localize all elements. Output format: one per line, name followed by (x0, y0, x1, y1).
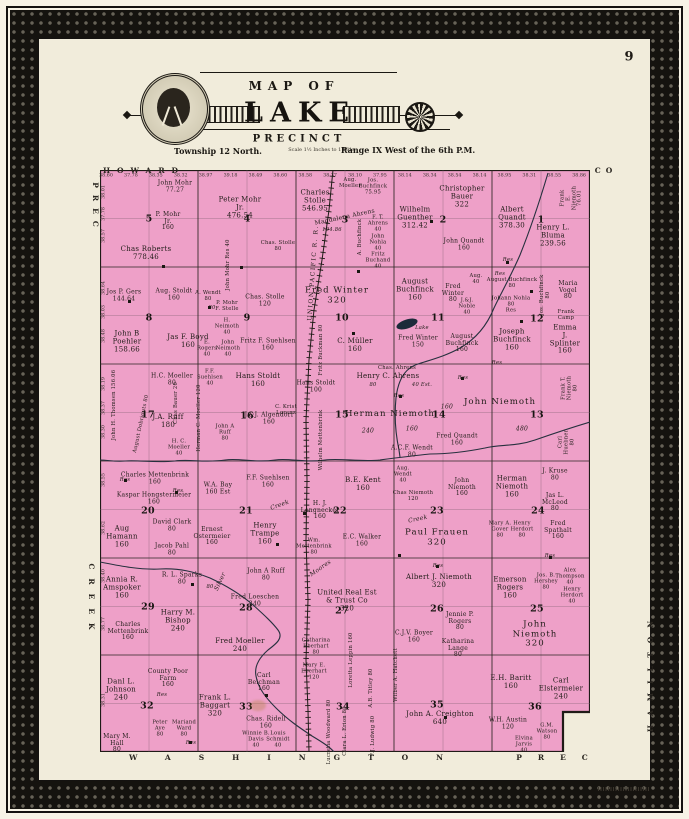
parcel-label: Jacob Pahl 80 (155, 543, 189, 556)
parcel-label: John Nohla 40 (369, 234, 386, 251)
parcel-label: John H. Thomsen 156.06 (112, 370, 118, 441)
map-geography (100, 170, 590, 752)
parcel-label: Katharina Lange 80 (442, 639, 474, 659)
section-number: 13 (530, 411, 544, 422)
parcel-label: Peter Mohr Jr. 476.54 (219, 196, 262, 219)
parcel-label: Mary A. Gover 80 (489, 521, 512, 538)
section-number: 23 (430, 507, 444, 518)
plat-map: 5432189101112171615141320212223242928272… (100, 170, 590, 752)
survey-number: 38.86 (572, 173, 586, 178)
border-county-label: WASHINGTON (129, 754, 471, 762)
parcel-label: Wilber A. Hatchett (394, 648, 400, 702)
page-number: 9 (624, 50, 633, 65)
parcel-label: A.B. Titley 80 (369, 668, 375, 707)
residence-square (549, 556, 552, 559)
residence-square (265, 694, 268, 697)
parcel-label: Res (492, 361, 502, 367)
parcel-label: 240 (362, 429, 374, 436)
parcel-label: Fred Moeller 240 (215, 638, 265, 654)
parcel-label: C. Müller 160 (337, 338, 372, 354)
parcel-label: Louis Schmidt 40 (266, 731, 290, 748)
survey-number: 38.62 (101, 521, 106, 535)
parcel-label: John Niemoth 160 (448, 478, 476, 498)
parcel-label: Henry Herdort 40 (561, 587, 584, 604)
section-number: 32 (140, 702, 154, 713)
section-number: 29 (141, 603, 155, 614)
sunburst-medallion (405, 102, 435, 132)
survey-number: 38.49 (249, 173, 263, 178)
parcel-label: John Neimoth 40 (216, 340, 241, 357)
parcel-label: John Niemoth 320 (508, 621, 563, 650)
parcel-label: B.E. Kent 160 (345, 477, 381, 493)
section-number: 36 (528, 703, 542, 714)
parcel-label: Annia R. Amspoker 160 (103, 576, 141, 599)
parcel-label: Wilhelm Mettenbrink (319, 410, 325, 471)
survey-number: 38.97 (199, 173, 213, 178)
parcel-label: Catharina Eberhart 80 (302, 638, 330, 655)
survey-number: 38.01 (101, 185, 106, 199)
parcel-label: F. T. Ahrens 40 (368, 215, 388, 232)
parcel-label: John Quandt 160 (444, 238, 485, 251)
survey-number: 38.55 (101, 473, 106, 487)
survey-number: 38.14 (398, 173, 412, 178)
attribution-microtext (598, 787, 650, 791)
parcel-label: 104.86 (322, 228, 342, 234)
parcel-label: John A. Creighton 640 (406, 711, 474, 727)
survey-number: 38.77 (101, 617, 106, 631)
parcel-label: August Buchfinck 160 (446, 334, 479, 354)
parcel-label: Aug. Wendt 40 (394, 466, 412, 483)
survey-number: 38.31 (522, 173, 536, 178)
border-county-label: CREEK (87, 563, 95, 638)
survey-number: 38.57 (101, 229, 106, 243)
survey-number: 38.54 (448, 173, 462, 178)
residence-square (398, 554, 401, 557)
parcel-label: Hans Stoldt 160 (236, 373, 281, 389)
parcel-label: Fred Winter 150 (398, 335, 438, 348)
survey-number: 37.95 (373, 173, 387, 178)
parcel-label: H.C. Moeller 80 (151, 373, 193, 386)
parcel-label: A.C.F. Wendt 80 (391, 445, 433, 458)
parcel-label: Henry L. Bluma 239.56 (536, 224, 569, 247)
parcel-label: R. L. Sparks 80 (162, 572, 202, 585)
border-county-label: CO (595, 167, 618, 175)
parcel-label: Carl Huebner 80 (558, 430, 575, 455)
parcel-label: Lake (415, 326, 429, 332)
parcel-label: Jas L. McLeod 80 (542, 493, 568, 513)
residence-square (276, 543, 279, 546)
title-range: Range IX West of the 6th P.M. (341, 145, 475, 155)
parcel-label: Henry C. Ahrens (357, 373, 420, 381)
survey-number: 38.55 (547, 173, 561, 178)
residence-square (128, 300, 131, 303)
parcel-label: Loretta Leppin 160 (349, 632, 355, 687)
parcel-label: 160 (406, 427, 418, 434)
parcel-label: Fritz Buchand 40 (366, 252, 391, 269)
survey-number: 38.40 (101, 569, 106, 583)
survey-number: 38.31 (101, 693, 106, 707)
parcel-label: Peter Aye 80 (152, 720, 167, 737)
parcel-label: Jos. Buchfinck 75.95 (359, 178, 388, 195)
survey-number: 38.10 (348, 173, 362, 178)
parcel-label: Hans Stoldt 100 (297, 380, 336, 393)
parcel-label: Chas. Ridell 160 (246, 716, 286, 729)
parcel-label: Chas Niemoth 120 (393, 491, 433, 503)
section-number: 8 (146, 314, 153, 325)
parcel-label: Frank E. Niemoth 76.01 (560, 186, 583, 211)
parcel-label: Alex Thompson 40 (555, 568, 584, 585)
survey-number: 38.37 (101, 401, 106, 415)
survey-number: 38.34 (423, 173, 437, 178)
parcel-label: 480 (516, 427, 528, 434)
parcel-label: Chas. Stolle 120 (245, 294, 284, 307)
survey-number: 38.37 (323, 173, 337, 178)
parcel-label: August Buchfinck 160 (396, 278, 434, 301)
residence-square (506, 261, 509, 264)
parcel-label: Aug. 40 (469, 274, 482, 286)
section-number: 25 (530, 605, 544, 616)
parcel-label: Charles Mettenbrink 160 (108, 622, 149, 642)
section-number: 20 (141, 507, 155, 518)
parcel-label: Henry Herdort 80 (511, 521, 534, 538)
parcel-label: Wilhelm Guenther 312.42 (397, 206, 433, 229)
survey-number: 38.19 (101, 377, 106, 391)
parcel-label: 80 (369, 383, 376, 389)
survey-number: 39.18 (224, 173, 238, 178)
residence-square (303, 512, 306, 515)
parcel-label: Chas. Ahrens (378, 366, 416, 372)
parcel-label: Frank T. Niemoth 80 (561, 376, 578, 400)
parcel-label: Chas Roberts 778.46 (121, 246, 172, 262)
atlas-page: { "page": {"number": "9", "paper": "#f1e… (0, 0, 689, 819)
residence-square (175, 491, 178, 494)
parcel-label: Paul Frauen 320 (405, 528, 469, 547)
section-number: 9 (244, 314, 251, 325)
residence-square (436, 565, 439, 568)
parcel-label: Danl L. Johnson 240 (106, 678, 136, 701)
parcel-label: F.J. Ludwig 80 (371, 716, 377, 757)
parcel-label: Fritz F. Suehlsen 160 (240, 338, 296, 351)
parcel-label: Clara L. Erion 80 (343, 706, 349, 756)
title-township: Township 12 North. (174, 146, 262, 156)
parcel-label: Aug. Stoldt 160 (156, 288, 193, 301)
parcel-label: Jos. B. Hershey 80 (534, 573, 558, 590)
border-county-label: PREC (516, 754, 604, 762)
parcel-label: Chas Bauer 20 (174, 382, 180, 424)
survey-number: 38.95 (498, 173, 512, 178)
parcel-label: Mary M. Hall 80 (103, 734, 131, 754)
title-map-of: MAP OF (249, 79, 340, 93)
survey-number: 38.30 (101, 425, 106, 439)
residence-square (444, 716, 447, 719)
parcel-label: F.F. Suehlsen 160 (246, 475, 289, 488)
parcel-label: Fritz Buckman 80 (319, 324, 325, 375)
residence-square (357, 270, 360, 273)
parcel-label: Joseph Buchfinck 160 (493, 328, 531, 351)
border-county-label: PREC (91, 182, 99, 234)
residence-square (208, 306, 211, 309)
precinct-name: LAKE (244, 98, 356, 129)
parcel-label: 40 Est. (412, 383, 432, 389)
parcel-label: Frank L. Baggart 320 (199, 694, 231, 717)
parcel-label: 160 (441, 405, 453, 412)
parcel-label: J.&J. Noble 40 (459, 298, 476, 315)
parcel-label: W.A. Bay 160 Est (204, 482, 233, 495)
section-number: 10 (335, 314, 349, 325)
engraving-hairline-top (200, 72, 397, 73)
parcel-label: John A Ruff 80 (216, 424, 235, 441)
parcel-label: Jos. Buchfinck 80 (540, 273, 552, 317)
parcel-label: United Real Est & Trust Co 320 (317, 589, 377, 612)
survey-number: 38.14 (473, 173, 487, 178)
parcel-label: A. Buchfinck (358, 219, 364, 255)
parcel-label: Frank Camp (558, 310, 575, 322)
parcel-label: Emma J. Splinter 160 (550, 324, 581, 355)
parcel-label: Johann Nohla 80 Res (492, 296, 531, 313)
section-number: 21 (239, 507, 253, 518)
parcel-label: C.J.V. Boyer 160 (395, 630, 433, 643)
parcel-label: John Niemoth (464, 398, 536, 408)
parcel-label: Carl Elstermeier 240 (539, 677, 584, 700)
parcel-label: Mariand Ward 80 (172, 720, 196, 737)
parcel-label: Jos P. Gers 144.64 (107, 289, 142, 302)
parcel-label: John Mohr Res 40 (226, 239, 232, 290)
parcel-label: Emerson Rogers 160 (493, 576, 526, 599)
residence-square (461, 377, 464, 380)
residence-square (240, 266, 243, 269)
parcel-label: Herman Niemoth 160 (496, 475, 528, 498)
residence-square (189, 741, 192, 744)
residence-square (430, 220, 433, 223)
parcel-label: August Buchfinck 80 (487, 278, 538, 290)
section-number: 5 (146, 215, 153, 226)
parcel-label: Wm. Mettenbrink 80 (296, 538, 332, 555)
parcel-label: Christopher Bauer 322 (439, 185, 484, 208)
parcel-label: John B Poehler 158.66 (113, 330, 142, 353)
parcel-label: W.H. Austin 120 (489, 717, 527, 730)
parcel-label: Charles Stolle 546.95 (300, 189, 329, 212)
residence-square (191, 583, 194, 586)
surveyor-medallion (140, 73, 210, 145)
parcel-label: H. J. Longnecker 160 (301, 501, 340, 521)
parcel-label: Herman C. Moeller 120 (197, 384, 203, 451)
paper-stain (250, 700, 266, 711)
parcel-label: Maria Vogel 80 (558, 281, 577, 301)
parcel-label: Albert Quandt 378.30 (498, 206, 526, 229)
parcel-label: Herman Niemoth (345, 410, 435, 420)
parcel-label: John A Ruff 80 (247, 568, 284, 581)
parcel-label: H. C. Moeller 40 (168, 439, 190, 456)
parcel-label: Charles Mettenbrink 160 (121, 472, 189, 485)
survey-number: 37.78 (101, 207, 106, 221)
border-county-label: HOWARD (103, 167, 185, 175)
residence-square (530, 290, 533, 293)
residence-square (520, 320, 523, 323)
section-number: 26 (430, 605, 444, 616)
parcel-label: J. Kruse 80 (542, 468, 568, 481)
title-precinct: PRECINCT (253, 134, 346, 145)
residence-square (352, 332, 355, 335)
section-number: 2 (440, 216, 447, 227)
section-number: 11 (431, 314, 445, 325)
survey-number: 38.60 (273, 173, 287, 178)
survey-number: 38.58 (298, 173, 312, 178)
parcel-label: E.H. Baritt 160 (490, 675, 531, 691)
parcel-label: Chas. Stolle 80 (261, 241, 296, 253)
residence-square (124, 479, 127, 482)
border-county-label: HAMILTON (647, 612, 655, 732)
parcel-label: Fred Quandt 160 (436, 433, 478, 446)
parcel-label: Fred Loeschen 240 (231, 594, 279, 607)
parcel-label: Jennie P. Rogers 80 (446, 612, 474, 632)
parcel-label: Albert J. Niemoth 320 (406, 574, 472, 590)
parcel-label: P. Mohr F. Stelle (215, 301, 238, 313)
parcel-label: Res (157, 693, 167, 699)
parcel-label: G.M. Watson 80 (537, 723, 558, 740)
parcel-label: Mary E. Eberhart 120 (301, 663, 327, 680)
parcel-label: Harry M. Bishop 240 (161, 609, 196, 632)
parcel-label: County Poor Farm 160 (148, 669, 188, 689)
parcel-label: H. Neimoth 40 (215, 318, 240, 335)
parcel-label: C. Krist Lorenz (275, 405, 297, 417)
parcel-label: Aug Hamann 160 (106, 525, 138, 548)
parcel-label: Fred Spathalt 160 (544, 521, 572, 541)
parcel-label: Ernest Ostermeier 160 (194, 527, 231, 547)
residence-square (399, 395, 402, 398)
parcel-label: David Clark 80 (153, 519, 192, 532)
parcel-label: E.C. Walker 160 (343, 534, 381, 547)
residence-square (162, 265, 165, 268)
parcel-label: Carl Beichman 160 (248, 673, 280, 693)
survey-number: 38.64 (101, 281, 106, 295)
parcel-label: John Mohr 77.27 (158, 180, 192, 193)
survey-number: 38.48 (101, 329, 106, 343)
parcel-label: Elvina Jarvis 40 (515, 736, 533, 753)
survey-number: 38.03 (101, 305, 106, 319)
parcel-label: P. Mohr Jr. 160 (156, 212, 181, 232)
parcel-label: E. Rogers 40 (197, 340, 217, 357)
